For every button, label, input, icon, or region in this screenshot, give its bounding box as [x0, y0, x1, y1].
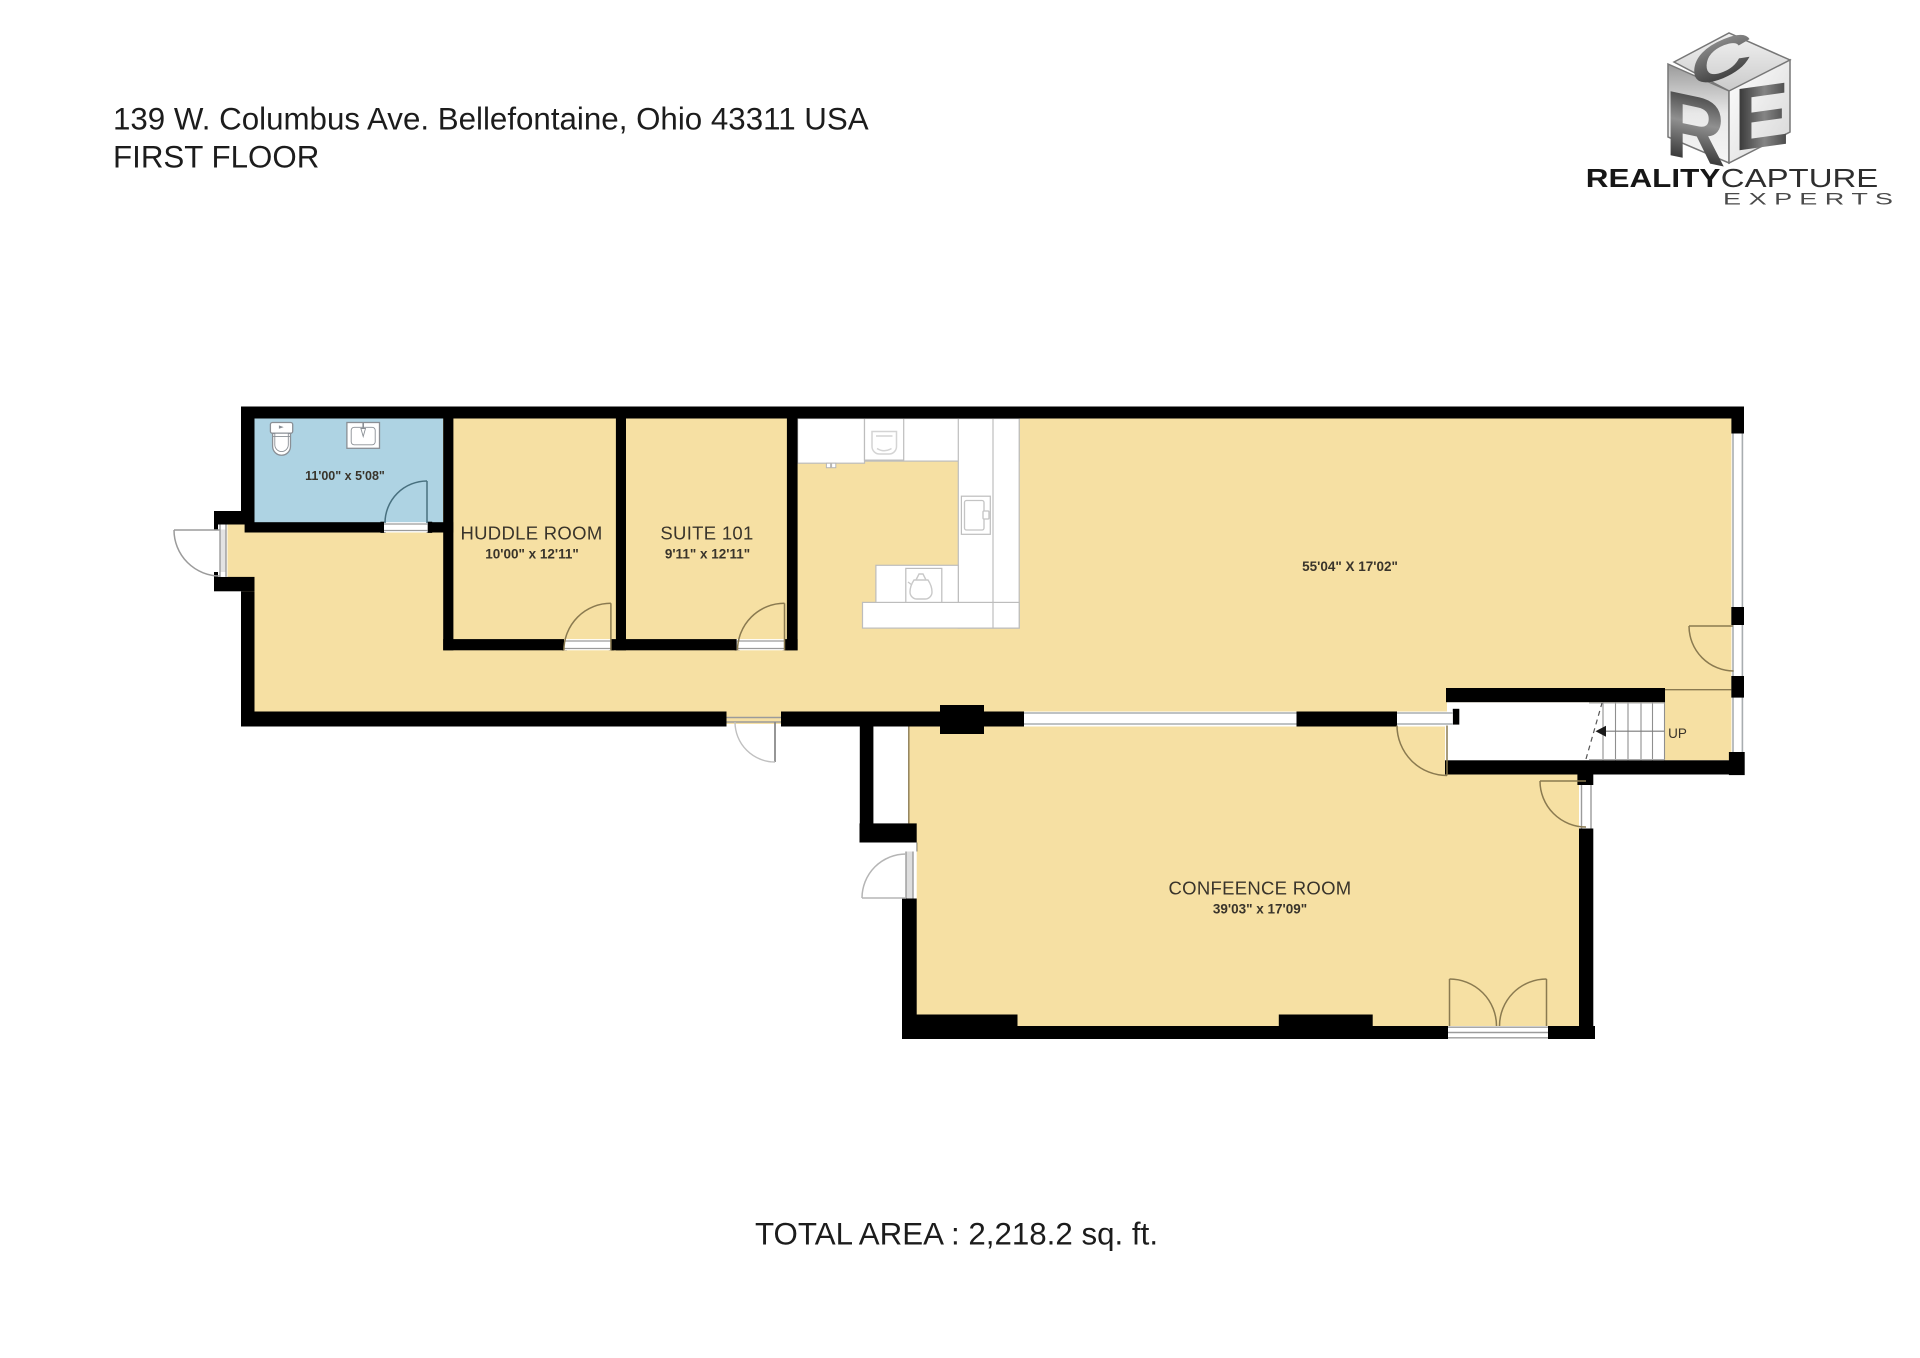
- svg-text:10'00" x 12'11": 10'00" x 12'11": [485, 547, 579, 562]
- svg-text:39'03" x 17'09": 39'03" x 17'09": [1213, 902, 1307, 917]
- svg-text:CAPTURE: CAPTURE: [1721, 163, 1879, 193]
- svg-text:UP: UP: [1668, 726, 1687, 741]
- svg-text:SUITE 101: SUITE 101: [660, 523, 753, 544]
- svg-text:TOTAL AREA : 2,218.2 sq. ft.: TOTAL AREA : 2,218.2 sq. ft.: [755, 1217, 1158, 1252]
- svg-text:55'04" X 17'02": 55'04" X 17'02": [1302, 559, 1398, 574]
- svg-text:139 W. Columbus Ave. Bellefont: 139 W. Columbus Ave. Bellefontaine, Ohio…: [113, 102, 869, 137]
- svg-text:HUDDLE ROOM: HUDDLE ROOM: [460, 523, 602, 544]
- svg-text:REALITY: REALITY: [1586, 163, 1721, 193]
- svg-text:9'11" x 12'11": 9'11" x 12'11": [665, 547, 750, 562]
- svg-text:E: E: [1734, 64, 1789, 171]
- svg-text:11'00" x 5'08": 11'00" x 5'08": [305, 469, 385, 483]
- svg-text:FIRST FLOOR: FIRST FLOOR: [113, 139, 319, 174]
- svg-text:CONFEENCE ROOM: CONFEENCE ROOM: [1168, 878, 1351, 899]
- svg-text:E X P E R T S: E X P E R T S: [1723, 190, 1893, 209]
